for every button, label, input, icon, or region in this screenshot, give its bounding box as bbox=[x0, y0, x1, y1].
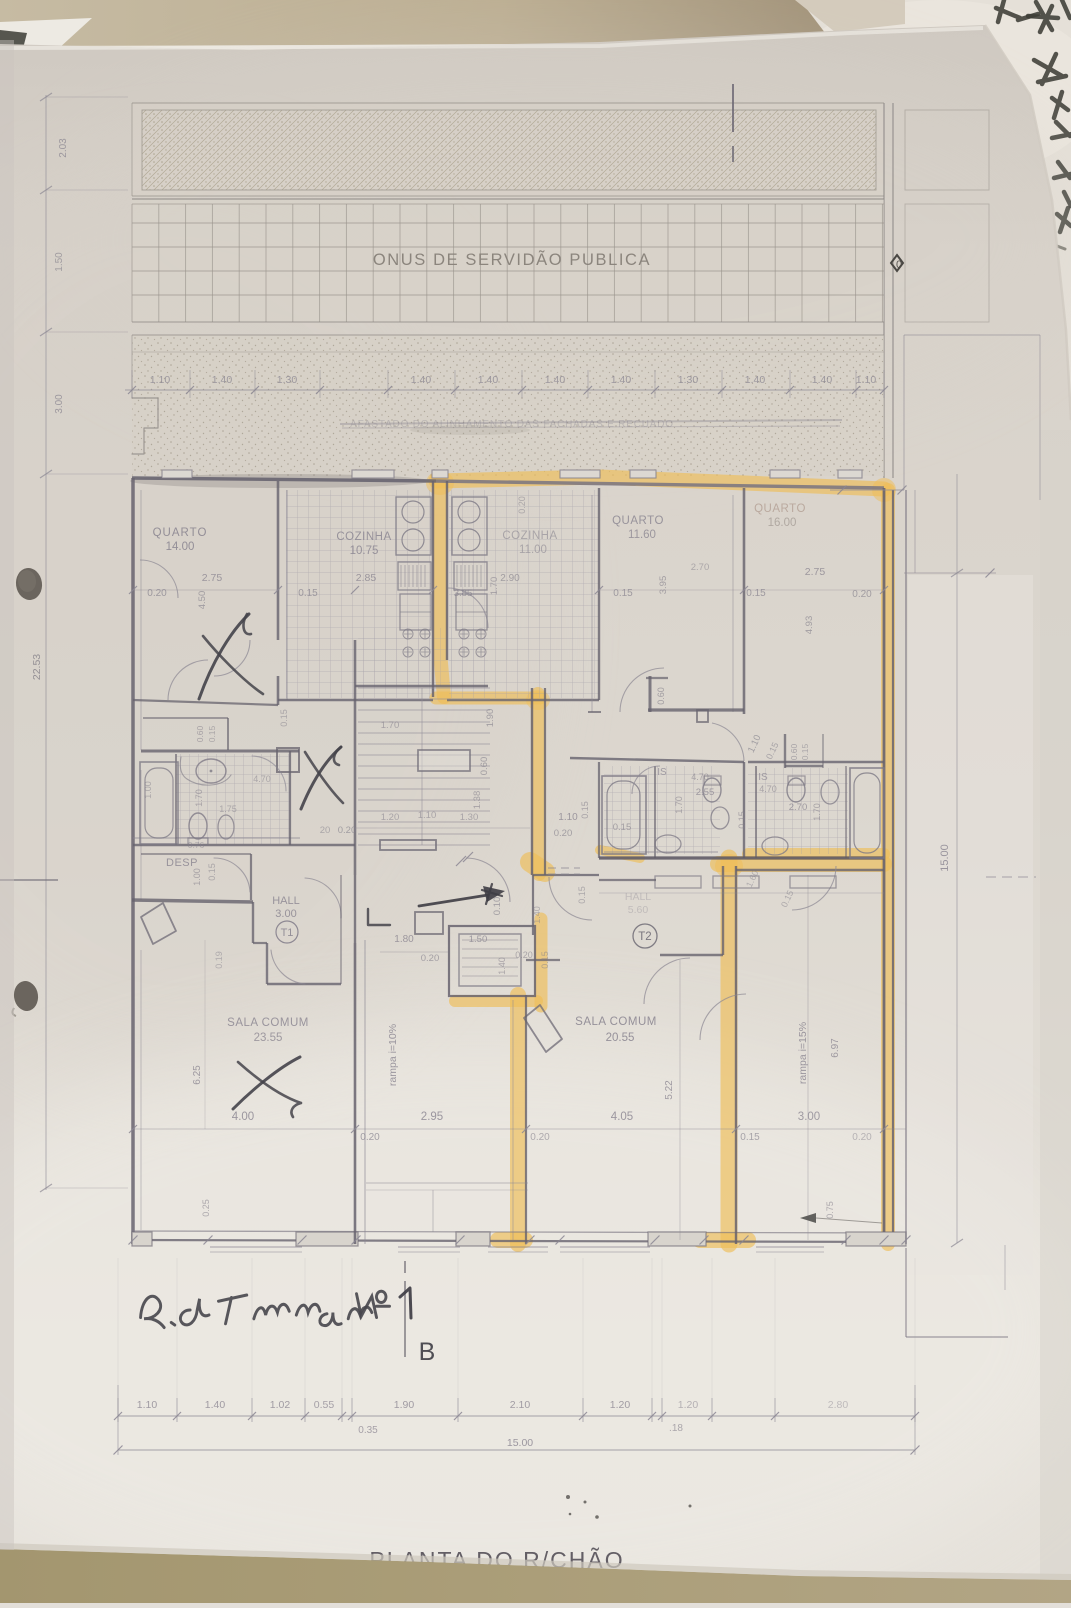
svg-text:1.40: 1.40 bbox=[205, 1399, 226, 1411]
svg-text:4.70: 4.70 bbox=[253, 774, 271, 784]
svg-text:0.75: 0.75 bbox=[825, 1201, 835, 1219]
svg-text:1.70: 1.70 bbox=[674, 796, 684, 814]
svg-text:0.15: 0.15 bbox=[298, 588, 318, 599]
svg-text:1.40: 1.40 bbox=[812, 374, 833, 386]
svg-text:rampa i=10%: rampa i=10% bbox=[387, 1024, 399, 1086]
svg-text:0.60: 0.60 bbox=[195, 725, 205, 742]
svg-text:1.40: 1.40 bbox=[411, 374, 432, 386]
svg-text:QUARTO: QUARTO bbox=[153, 527, 208, 539]
svg-text:0.15: 0.15 bbox=[613, 822, 632, 833]
svg-text:2.80: 2.80 bbox=[828, 1399, 849, 1411]
svg-text:1.10: 1.10 bbox=[137, 1399, 158, 1411]
svg-text:1.00: 1.00 bbox=[192, 868, 202, 886]
svg-text:2.70: 2.70 bbox=[789, 802, 808, 813]
svg-text:0: 0 bbox=[896, 259, 902, 271]
svg-text:0.55: 0.55 bbox=[314, 1399, 335, 1411]
svg-text:IS: IS bbox=[758, 772, 768, 783]
svg-text:QUARTO: QUARTO bbox=[754, 503, 806, 515]
svg-text:SALA COMUM: SALA COMUM bbox=[575, 1016, 657, 1028]
svg-text:1.70: 1.70 bbox=[194, 789, 204, 807]
svg-text:6.25: 6.25 bbox=[192, 1065, 203, 1085]
svg-text:2.85: 2.85 bbox=[356, 572, 377, 584]
svg-text:6.97: 6.97 bbox=[830, 1038, 841, 1058]
svg-text:4.00: 4.00 bbox=[232, 1111, 254, 1123]
svg-text:1.50: 1.50 bbox=[54, 252, 65, 272]
svg-text:1.40: 1.40 bbox=[532, 906, 542, 924]
svg-text:1.40: 1.40 bbox=[611, 374, 632, 386]
svg-text:1.20: 1.20 bbox=[381, 812, 400, 823]
svg-text:0.35: 0.35 bbox=[358, 1425, 378, 1436]
svg-text:0.20: 0.20 bbox=[421, 953, 440, 964]
svg-text:4.50: 4.50 bbox=[197, 591, 208, 610]
svg-text:5.22: 5.22 bbox=[664, 1080, 675, 1100]
svg-text:1.10: 1.10 bbox=[856, 374, 877, 386]
svg-text:1.40: 1.40 bbox=[545, 374, 566, 386]
svg-text:3.00: 3.00 bbox=[798, 1111, 820, 1123]
svg-text:HALL: HALL bbox=[625, 891, 651, 903]
svg-text:0.10: 0.10 bbox=[492, 897, 503, 916]
svg-text:COZINHA: COZINHA bbox=[336, 531, 391, 543]
svg-text:2.95: 2.95 bbox=[421, 1111, 443, 1123]
svg-text:2.70: 2.70 bbox=[691, 562, 710, 573]
svg-text:2.75: 2.75 bbox=[202, 572, 223, 584]
svg-text:15.00: 15.00 bbox=[507, 1437, 533, 1449]
svg-text:1.75: 1.75 bbox=[219, 804, 237, 814]
svg-text:1.20: 1.20 bbox=[610, 1399, 631, 1411]
svg-text:ONUS DE SERVIDÃO PUBLICA: ONUS DE SERVIDÃO PUBLICA bbox=[373, 249, 651, 269]
svg-text:T1: T1 bbox=[281, 927, 294, 939]
svg-text:3.95: 3.95 bbox=[658, 576, 669, 595]
svg-text:1.30: 1.30 bbox=[678, 374, 699, 386]
svg-text:2.55: 2.55 bbox=[696, 787, 715, 798]
svg-text:1.00: 1.00 bbox=[143, 781, 153, 799]
svg-text:0.20: 0.20 bbox=[852, 1132, 872, 1143]
svg-text:1.10: 1.10 bbox=[150, 374, 171, 386]
svg-text:0.60: 0.60 bbox=[789, 743, 799, 760]
svg-text:1.70: 1.70 bbox=[381, 720, 400, 731]
svg-text:0.15: 0.15 bbox=[540, 951, 550, 969]
svg-text:0.15: 0.15 bbox=[207, 863, 217, 881]
svg-text:23.55: 23.55 bbox=[254, 1032, 283, 1044]
svg-text:1.70: 1.70 bbox=[489, 577, 500, 596]
svg-text:20: 20 bbox=[320, 825, 331, 836]
svg-text:QUARTO: QUARTO bbox=[612, 515, 664, 527]
svg-text:1.02: 1.02 bbox=[270, 1399, 291, 1411]
svg-text:4.05: 4.05 bbox=[611, 1111, 633, 1123]
svg-text:15.00: 15.00 bbox=[939, 844, 951, 872]
svg-text:DESP: DESP bbox=[166, 857, 198, 869]
svg-text:0.15: 0.15 bbox=[279, 709, 289, 727]
svg-text:14.00: 14.00 bbox=[166, 541, 195, 553]
svg-text:2.03: 2.03 bbox=[58, 138, 69, 158]
svg-text:B: B bbox=[419, 1338, 436, 1366]
svg-text:0.19: 0.19 bbox=[214, 951, 224, 969]
svg-text:4.70: 4.70 bbox=[691, 772, 709, 782]
svg-text:IS: IS bbox=[657, 767, 667, 778]
svg-text:T2: T2 bbox=[638, 931, 651, 943]
svg-text:5.60: 5.60 bbox=[628, 904, 649, 916]
svg-text:2.90: 2.90 bbox=[500, 573, 520, 584]
svg-text:0.20: 0.20 bbox=[338, 825, 357, 836]
svg-text:20.55: 20.55 bbox=[606, 1032, 635, 1044]
svg-text:1.40: 1.40 bbox=[497, 957, 507, 975]
svg-text:0.76: 0.76 bbox=[188, 840, 205, 850]
svg-text:11.60: 11.60 bbox=[628, 529, 656, 541]
svg-text:1.50: 1.50 bbox=[469, 934, 488, 945]
svg-text:1.40: 1.40 bbox=[745, 374, 766, 386]
svg-text:11.00: 11.00 bbox=[519, 544, 547, 556]
svg-text:2.10: 2.10 bbox=[510, 1399, 531, 1411]
svg-text:0.20: 0.20 bbox=[517, 496, 527, 514]
svg-text:3.85: 3.85 bbox=[454, 588, 473, 599]
svg-text:1.80: 1.80 bbox=[394, 934, 414, 945]
svg-text:0.20: 0.20 bbox=[147, 588, 167, 599]
svg-text:1.40: 1.40 bbox=[212, 374, 233, 386]
svg-text:2.75: 2.75 bbox=[805, 566, 826, 578]
svg-text:0.15: 0.15 bbox=[580, 801, 590, 819]
svg-text:1.40: 1.40 bbox=[478, 374, 499, 386]
svg-text:1.10: 1.10 bbox=[558, 812, 578, 823]
svg-text:1.90: 1.90 bbox=[394, 1399, 415, 1411]
svg-text:3.00: 3.00 bbox=[54, 394, 65, 414]
svg-text:rampa i=15%: rampa i=15% bbox=[797, 1022, 809, 1084]
svg-text:22.53: 22.53 bbox=[31, 654, 43, 680]
svg-text:SALA COMUM: SALA COMUM bbox=[227, 1017, 309, 1029]
svg-text:16.00: 16.00 bbox=[768, 517, 797, 529]
svg-text:3.00: 3.00 bbox=[275, 908, 296, 920]
svg-text:1.30: 1.30 bbox=[277, 374, 298, 386]
svg-text:0.20: 0.20 bbox=[852, 589, 872, 600]
svg-text:4.70: 4.70 bbox=[759, 784, 777, 794]
svg-text:4.93: 4.93 bbox=[804, 616, 815, 635]
svg-text:.18: .18 bbox=[669, 1423, 683, 1434]
svg-text:0.15: 0.15 bbox=[207, 725, 217, 742]
svg-text:0.20: 0.20 bbox=[360, 1132, 380, 1143]
svg-text:1.10: 1.10 bbox=[418, 810, 437, 821]
svg-text:0.60: 0.60 bbox=[656, 687, 666, 705]
svg-text:1.90: 1.90 bbox=[485, 709, 496, 728]
svg-text:1.20: 1.20 bbox=[678, 1399, 699, 1411]
svg-text:HALL: HALL bbox=[272, 895, 300, 907]
svg-text:0.25: 0.25 bbox=[201, 1199, 211, 1217]
svg-text:0.15: 0.15 bbox=[800, 743, 810, 760]
svg-text:0.20: 0.20 bbox=[515, 950, 533, 960]
svg-text:1.30: 1.30 bbox=[460, 812, 479, 823]
svg-text:COZINHA: COZINHA bbox=[502, 530, 557, 542]
svg-text:0.20: 0.20 bbox=[554, 828, 573, 839]
svg-text:0.15: 0.15 bbox=[737, 811, 747, 829]
svg-text:0.20: 0.20 bbox=[530, 1132, 550, 1143]
svg-text:0.15: 0.15 bbox=[740, 1132, 760, 1143]
svg-text:1.38: 1.38 bbox=[472, 791, 483, 810]
svg-text:1.70: 1.70 bbox=[812, 803, 822, 821]
svg-text:10.75: 10.75 bbox=[350, 545, 379, 557]
svg-text:0.60: 0.60 bbox=[479, 757, 490, 776]
svg-text:0.15: 0.15 bbox=[577, 886, 587, 904]
